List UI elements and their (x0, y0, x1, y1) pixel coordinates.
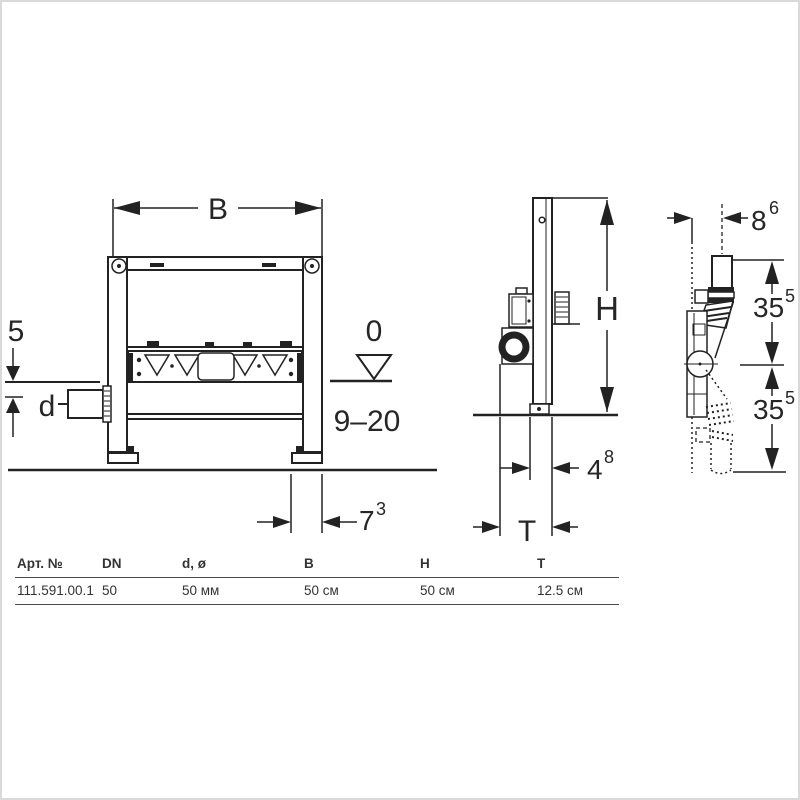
dim-chain-35-5: 35 5 35 5 (733, 260, 795, 472)
spec-table: Арт. № DN d, ø B H T 111.591.00.1 50 50 … (15, 551, 619, 605)
dim-5-label: 5 (8, 315, 25, 348)
cell-b: 50 см (302, 578, 418, 604)
dim-foot-depth-4-8: 4 8 (500, 447, 614, 485)
table-rule-bottom (15, 604, 619, 605)
dim-foot-7-3: 7 3 (257, 474, 386, 536)
dim-8-sup: 6 (769, 198, 779, 218)
dim-35-upper-base: 35 (753, 292, 784, 323)
dim-width-B: B (113, 193, 322, 256)
side-view: H 4 8 T (473, 198, 619, 548)
trap-upper-position (684, 256, 734, 417)
col-header-dn: DN (100, 551, 180, 577)
dim-7-base: 7 (359, 505, 375, 536)
front-view: B (5, 193, 437, 536)
post (533, 198, 552, 404)
outlet-pipe (712, 256, 732, 288)
cell-dn: 50 (100, 578, 180, 604)
installation-drawing: B (0, 0, 800, 800)
post-foot (530, 404, 549, 414)
dim-depth-T: T (473, 515, 578, 548)
dim-4-sup: 8 (604, 447, 614, 467)
cell-art-number: 111.591.00.1 (15, 578, 100, 604)
dim-d-label: d (39, 390, 56, 423)
dim-H-label: H (595, 290, 619, 327)
center-plate (198, 353, 234, 380)
dim-offset-8-6: 8 6 (667, 198, 779, 236)
cell-h: 50 см (418, 578, 535, 604)
drain-bracket (499, 328, 534, 415)
col-header-art: Арт. № (15, 551, 100, 577)
foot-plate (292, 453, 322, 463)
col-header-d: d, ø (180, 551, 302, 577)
spec-table-row: 111.591.00.1 50 50 мм 50 см 50 см 12.5 с… (15, 578, 619, 604)
foot-plate (108, 453, 138, 463)
cell-d: 50 мм (180, 578, 302, 604)
post-hole (539, 217, 545, 223)
dim-4-base: 4 (587, 454, 603, 485)
pipe-stub (68, 390, 103, 418)
col-header-b: B (302, 551, 418, 577)
upper-bracket (509, 288, 533, 327)
technical-drawing-page: B (0, 0, 800, 800)
wall-plate (552, 292, 580, 324)
col-header-t: T (535, 551, 619, 577)
frame-front (108, 257, 322, 463)
col-header-h: H (418, 551, 535, 577)
spec-table-header-row: Арт. № DN d, ø B H T (15, 551, 619, 577)
mount-square (695, 290, 708, 303)
rail-clip (150, 263, 164, 267)
level-triangle-icon (357, 355, 391, 379)
cell-t: 12.5 см (535, 578, 619, 604)
range-label: 9–20 (334, 405, 401, 438)
dim-T-label: T (518, 515, 536, 548)
dim-8-base: 8 (751, 205, 767, 236)
detail-view: 8 6 (667, 198, 795, 474)
dim-35-upper-sup: 5 (785, 286, 795, 306)
dim-width-label: B (208, 193, 228, 226)
dim-7-sup: 3 (376, 499, 386, 519)
level-zero-marker: 0 (330, 315, 392, 381)
zero-label: 0 (366, 315, 383, 348)
rail-clip (262, 263, 276, 267)
dim-35-lower-base: 35 (753, 394, 784, 425)
dim-35-lower-sup: 5 (785, 388, 795, 408)
inlet-pipe-d: d (39, 386, 111, 423)
